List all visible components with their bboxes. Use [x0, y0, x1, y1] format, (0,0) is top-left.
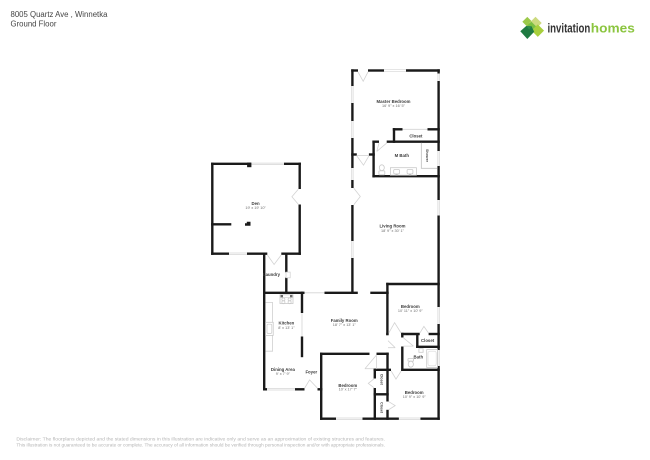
svg-text:Ground Floor: Ground Floor: [11, 20, 57, 29]
svg-text:Closet: Closet: [409, 133, 423, 138]
svg-text:10' x 17' 7": 10' x 17' 7": [339, 388, 358, 392]
svg-text:M Bath: M Bath: [395, 153, 410, 158]
svg-text:invitation: invitation: [548, 22, 591, 36]
svg-text:10' 9" x 10' 9": 10' 9" x 10' 9": [403, 395, 427, 399]
svg-text:Closet: Closet: [380, 374, 384, 386]
svg-text:8' x 13' 1": 8' x 13' 1": [278, 326, 295, 330]
svg-text:Shower: Shower: [425, 149, 429, 163]
svg-text:10' 11" x 10' 9": 10' 11" x 10' 9": [398, 309, 423, 313]
svg-text:19' x 19' 10": 19' x 19' 10": [245, 206, 266, 210]
svg-text:Closet: Closet: [421, 338, 435, 343]
svg-text:Closet: Closet: [380, 402, 384, 414]
svg-text:homes: homes: [591, 22, 635, 36]
svg-text:Disclaimer: The floorplans dep: Disclaimer: The floorplans depicted and …: [16, 436, 385, 441]
svg-text:16' 9" x 16' 5": 16' 9" x 16' 5": [382, 104, 406, 108]
svg-text:Foyer: Foyer: [305, 369, 317, 374]
svg-text:18' 9" x 30' 1": 18' 9" x 30' 1": [381, 229, 405, 233]
svg-text:This illustration is not guara: This illustration is not guaranteed to b…: [16, 443, 385, 448]
svg-text:Laundry: Laundry: [263, 272, 281, 277]
svg-text:8005 Quartz Ave , Winnetka: 8005 Quartz Ave , Winnetka: [11, 10, 109, 19]
svg-text:18' 7" x 13' 1": 18' 7" x 13' 1": [333, 323, 357, 327]
svg-text:Bath: Bath: [414, 354, 424, 359]
svg-text:9' x 7' 9": 9' x 7' 9": [276, 372, 291, 376]
